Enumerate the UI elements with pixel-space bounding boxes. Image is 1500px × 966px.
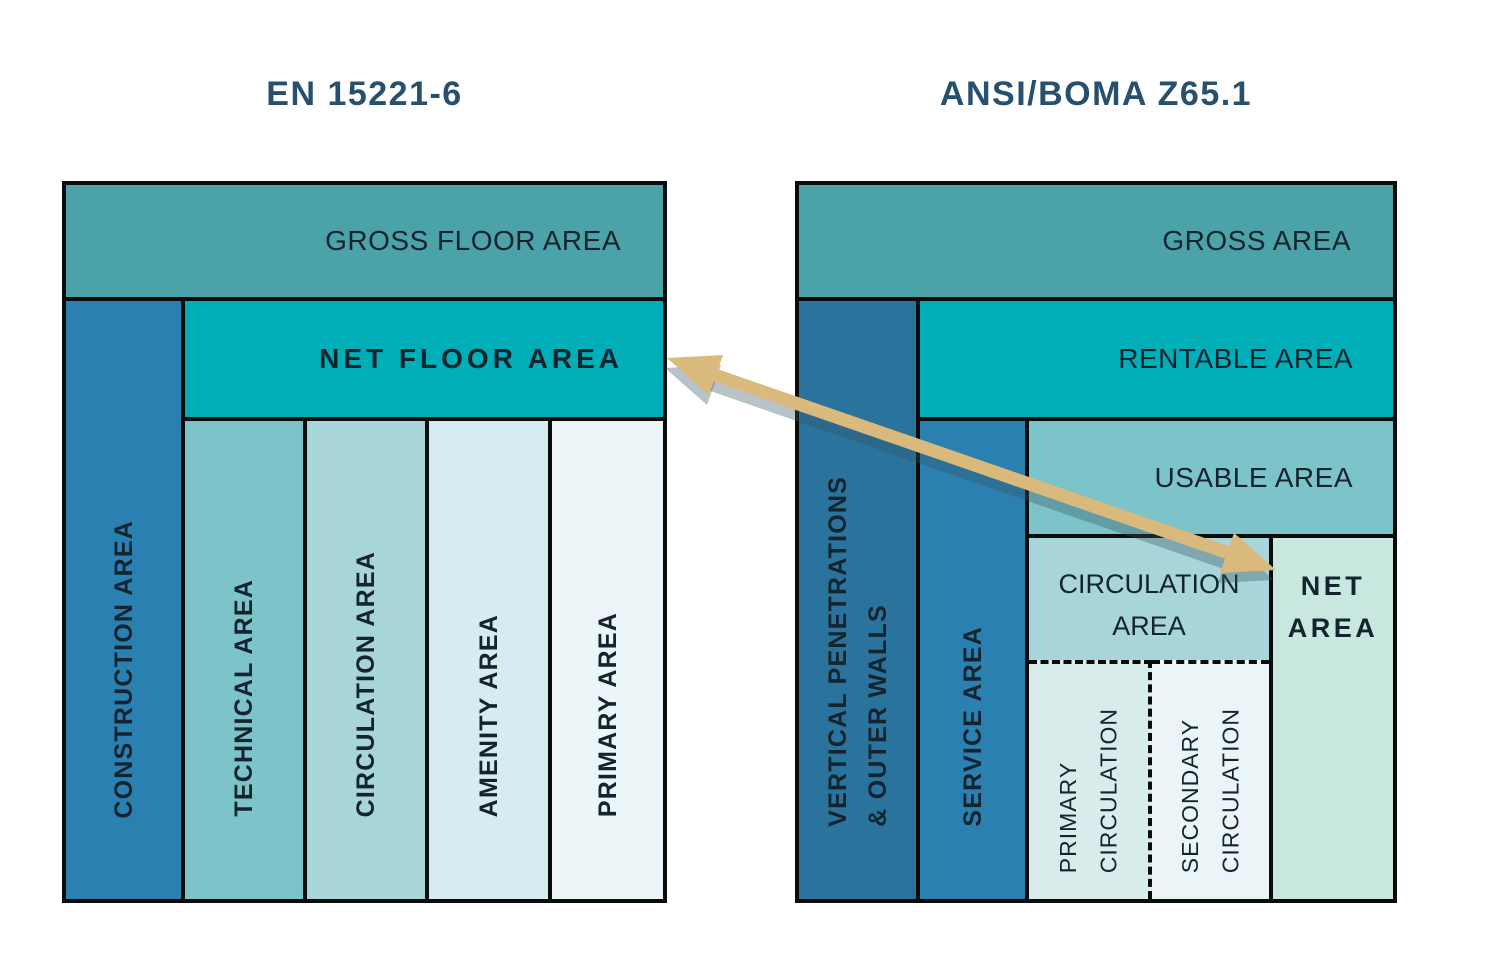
circulation-area-boma-box: CIRCULATION AREA PRIMARY CIRCULATION SEC… (1029, 538, 1269, 899)
primary-circulation-label: PRIMARY CIRCULATION (1048, 708, 1129, 873)
amenity-area-label: AMENITY AREA (469, 614, 509, 817)
service-area-box: SERVICE AREA (920, 421, 1025, 899)
boma-diagram: GROSS AREA VERTICAL PENETRATIONS & OUTER… (795, 181, 1397, 903)
usable-area-box: USABLE AREA (1029, 421, 1393, 534)
en-diagram: GROSS FLOOR AREA CONSTRUCTION AREA NET F… (62, 181, 667, 903)
page: EN 15221-6 ANSI/BOMA Z65.1 GROSS FLOOR A… (0, 0, 1500, 966)
title-en-standard: EN 15221-6 (62, 72, 667, 116)
secondary-circulation-box: SECONDARY CIRCULATION (1152, 660, 1269, 899)
technical-area-box: TECHNICAL AREA (185, 421, 303, 899)
arrow-head-left (667, 355, 723, 395)
gross-floor-area-box: GROSS FLOOR AREA (66, 185, 663, 297)
service-area-label: SERVICE AREA (953, 626, 993, 827)
circulation-area-box: CIRCULATION AREA (307, 421, 425, 899)
rentable-area-box: RENTABLE AREA (920, 301, 1393, 417)
amenity-area-box: AMENITY AREA (429, 421, 548, 899)
construction-area-label: CONSTRUCTION AREA (104, 520, 144, 819)
primary-area-box: PRIMARY AREA (552, 421, 663, 899)
net-floor-area-label: NET FLOOR AREA (319, 343, 623, 375)
primary-area-label: PRIMARY AREA (588, 612, 628, 817)
net-area-box: NET AREA (1273, 538, 1393, 899)
gross-area-box: GROSS AREA (799, 185, 1393, 297)
rentable-area-label: RENTABLE AREA (1118, 343, 1353, 375)
gross-area-label: GROSS AREA (1162, 225, 1351, 257)
circulation-area-boma-label: CIRCULATION AREA (1058, 564, 1239, 648)
circulation-area-label: CIRCULATION AREA (346, 551, 386, 817)
net-area-label: NET AREA (1288, 566, 1379, 650)
net-floor-area-box: NET FLOOR AREA (185, 301, 663, 417)
title-boma-standard: ANSI/BOMA Z65.1 (795, 72, 1397, 116)
primary-circulation-box: PRIMARY CIRCULATION (1029, 660, 1152, 899)
arrow-shadow-head-left (665, 365, 721, 405)
technical-area-label: TECHNICAL AREA (224, 579, 264, 817)
construction-area-box: CONSTRUCTION AREA (66, 301, 181, 899)
secondary-circulation-label: SECONDARY CIRCULATION (1170, 708, 1251, 873)
gross-floor-area-label: GROSS FLOOR AREA (325, 225, 621, 257)
usable-area-label: USABLE AREA (1155, 462, 1353, 494)
vertical-penetrations-box: VERTICAL PENETRATIONS & OUTER WALLS (799, 301, 916, 899)
vertical-penetrations-label: VERTICAL PENETRATIONS & OUTER WALLS (818, 476, 898, 827)
